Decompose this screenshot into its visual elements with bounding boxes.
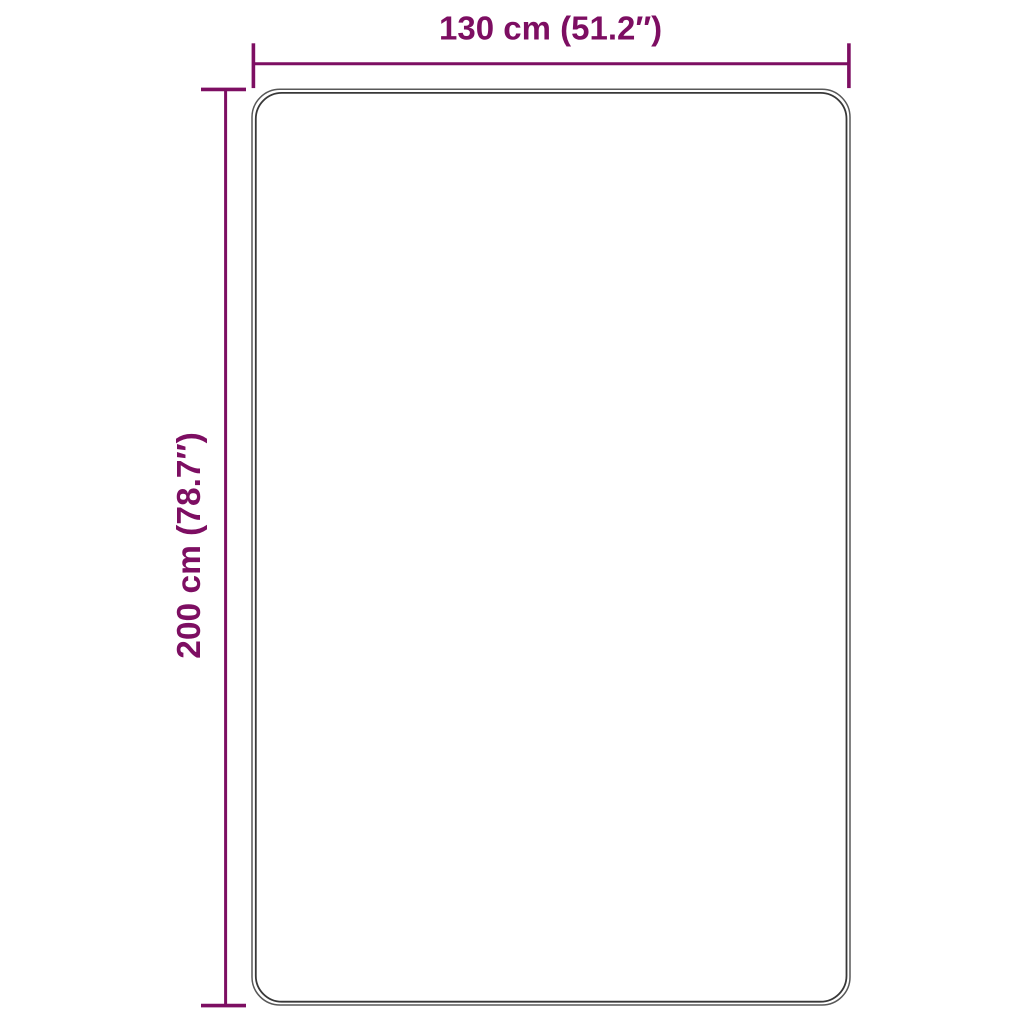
svg-text:130 cm (51.2″): 130 cm (51.2″) <box>439 10 662 47</box>
svg-text:200 cm (78.7″): 200 cm (78.7″) <box>171 432 208 659</box>
